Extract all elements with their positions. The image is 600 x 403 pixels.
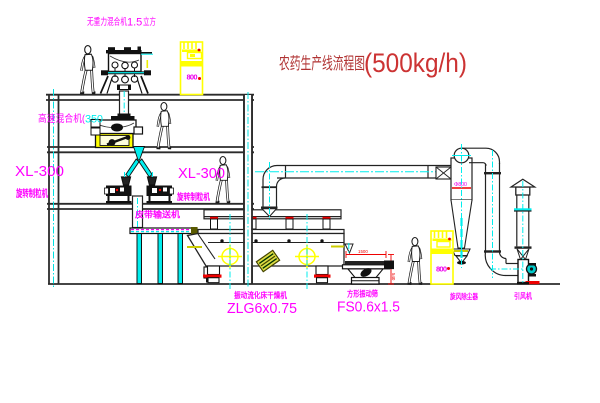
svg-text:1500: 1500 bbox=[358, 249, 368, 254]
svg-text:旋风除尘器: 旋风除尘器 bbox=[449, 291, 478, 301]
svg-text:Φ800: Φ800 bbox=[454, 182, 467, 188]
svg-text:ZLG6x0.75: ZLG6x0.75 bbox=[227, 301, 297, 317]
svg-text:引风机: 引风机 bbox=[514, 291, 532, 301]
svg-text:振动流化床干燥机: 振动流化床干燥机 bbox=[234, 290, 287, 300]
svg-text:350: 350 bbox=[85, 114, 103, 126]
svg-text:1.5: 1.5 bbox=[127, 17, 142, 29]
svg-text:(500kg/h): (500kg/h) bbox=[364, 48, 467, 78]
svg-text:XL-300: XL-300 bbox=[178, 166, 225, 182]
svg-text:540: 540 bbox=[391, 273, 396, 281]
svg-text:FS0.6x1.5: FS0.6x1.5 bbox=[337, 300, 400, 316]
svg-text:800: 800 bbox=[187, 73, 198, 82]
svg-text:800: 800 bbox=[436, 265, 447, 274]
svg-text:XL-300: XL-300 bbox=[15, 164, 64, 180]
svg-text:立方: 立方 bbox=[143, 16, 156, 28]
svg-text:皮带输送机: 皮带输送机 bbox=[134, 210, 181, 220]
svg-text:方形振动筛: 方形振动筛 bbox=[347, 289, 378, 299]
svg-text:无重力混合机: 无重力混合机 bbox=[87, 16, 127, 28]
svg-text:高速混合机(: 高速混合机( bbox=[38, 112, 86, 125]
svg-text:旋转制粒机: 旋转制粒机 bbox=[176, 191, 210, 202]
svg-text:旋转制粒机: 旋转制粒机 bbox=[15, 187, 48, 200]
svg-text:农药生产线流程图: 农药生产线流程图 bbox=[279, 54, 365, 73]
